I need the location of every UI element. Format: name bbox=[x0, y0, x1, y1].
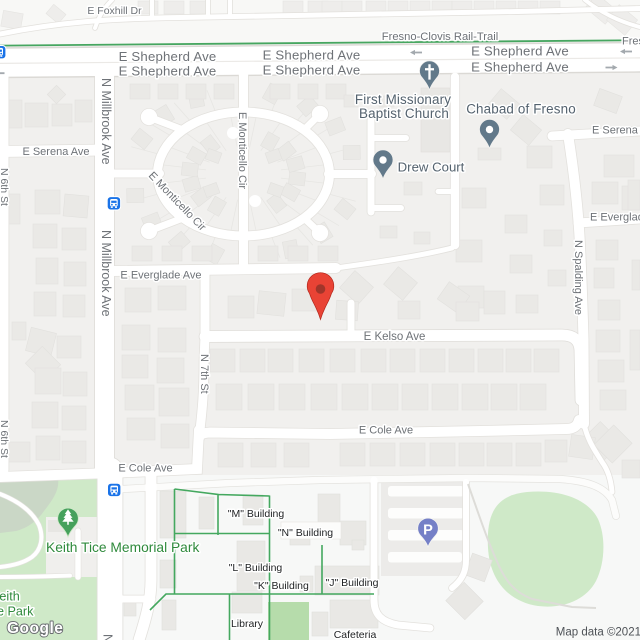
svg-text:E Everglade A: E Everglade A bbox=[590, 212, 640, 224]
svg-text:E Shepherd Ave: E Shepherd Ave bbox=[263, 48, 361, 63]
svg-text:E Serena A: E Serena A bbox=[592, 125, 640, 137]
svg-text:E Shepherd Ave: E Shepherd Ave bbox=[119, 49, 217, 64]
svg-text:"J" Building: "J" Building bbox=[326, 577, 379, 589]
svg-text:E Shepherd Ave: E Shepherd Ave bbox=[471, 60, 569, 75]
svg-text:E Foxhill Dr: E Foxhill Dr bbox=[87, 5, 142, 17]
svg-text:Chabad of Fresno: Chabad of Fresno bbox=[466, 102, 576, 117]
svg-text:E Serena Ave: E Serena Ave bbox=[22, 146, 89, 158]
svg-text:E Shepherd Ave: E Shepherd Ave bbox=[119, 64, 217, 79]
svg-text:E Shepherd Ave: E Shepherd Ave bbox=[471, 44, 569, 59]
svg-text:N Millbrook Ave: N Millbrook Ave bbox=[99, 230, 113, 317]
svg-text:N 6th St: N 6th St bbox=[0, 420, 10, 458]
svg-text:N 7th St: N 7th St bbox=[198, 354, 210, 394]
svg-text:e Park: e Park bbox=[0, 605, 34, 619]
svg-text:Drew Court: Drew Court bbox=[398, 160, 465, 175]
svg-text:Baptist Church: Baptist Church bbox=[359, 106, 449, 121]
svg-text:Fresno-Clovis Rail-Trail: Fresno-Clovis Rail-Trail bbox=[382, 31, 498, 43]
svg-text:"M" Building: "M" Building bbox=[228, 508, 285, 520]
svg-text:Map data ©2021: Map data ©2021 bbox=[556, 627, 640, 639]
svg-text:E Monticello Cir: E Monticello Cir bbox=[236, 112, 248, 189]
svg-text:N Millbrook Ave: N Millbrook Ave bbox=[99, 78, 113, 165]
svg-text:Keith Tice Memorial Park: Keith Tice Memorial Park bbox=[46, 540, 199, 555]
svg-text:Keith: Keith bbox=[0, 590, 20, 604]
svg-text:E Everglade Ave: E Everglade Ave bbox=[120, 270, 201, 282]
svg-text:"N" Building: "N" Building bbox=[278, 527, 333, 539]
svg-text:P: P bbox=[423, 523, 433, 539]
svg-text:"L" Building: "L" Building bbox=[229, 562, 283, 574]
svg-text:E Kelso Ave: E Kelso Ave bbox=[364, 331, 426, 343]
svg-text:Fresno-C: Fresno-C bbox=[622, 36, 640, 48]
svg-text:N 6th St: N 6th St bbox=[0, 168, 10, 206]
svg-text:E Shepherd Ave: E Shepherd Ave bbox=[263, 63, 361, 78]
svg-text:E Cole Ave: E Cole Ave bbox=[118, 463, 172, 475]
svg-text:"K" Building: "K" Building bbox=[254, 580, 309, 592]
svg-text:Google: Google bbox=[7, 620, 63, 637]
svg-text:E Cole Ave: E Cole Ave bbox=[359, 425, 413, 437]
svg-text:First Missionary: First Missionary bbox=[355, 92, 451, 107]
svg-text:Library: Library bbox=[231, 618, 264, 630]
svg-text:Cafeteria: Cafeteria bbox=[334, 629, 377, 640]
svg-text:N Spalding Ave: N Spalding Ave bbox=[572, 240, 584, 315]
svg-text:N Millbrook: N Millbrook bbox=[101, 634, 115, 640]
